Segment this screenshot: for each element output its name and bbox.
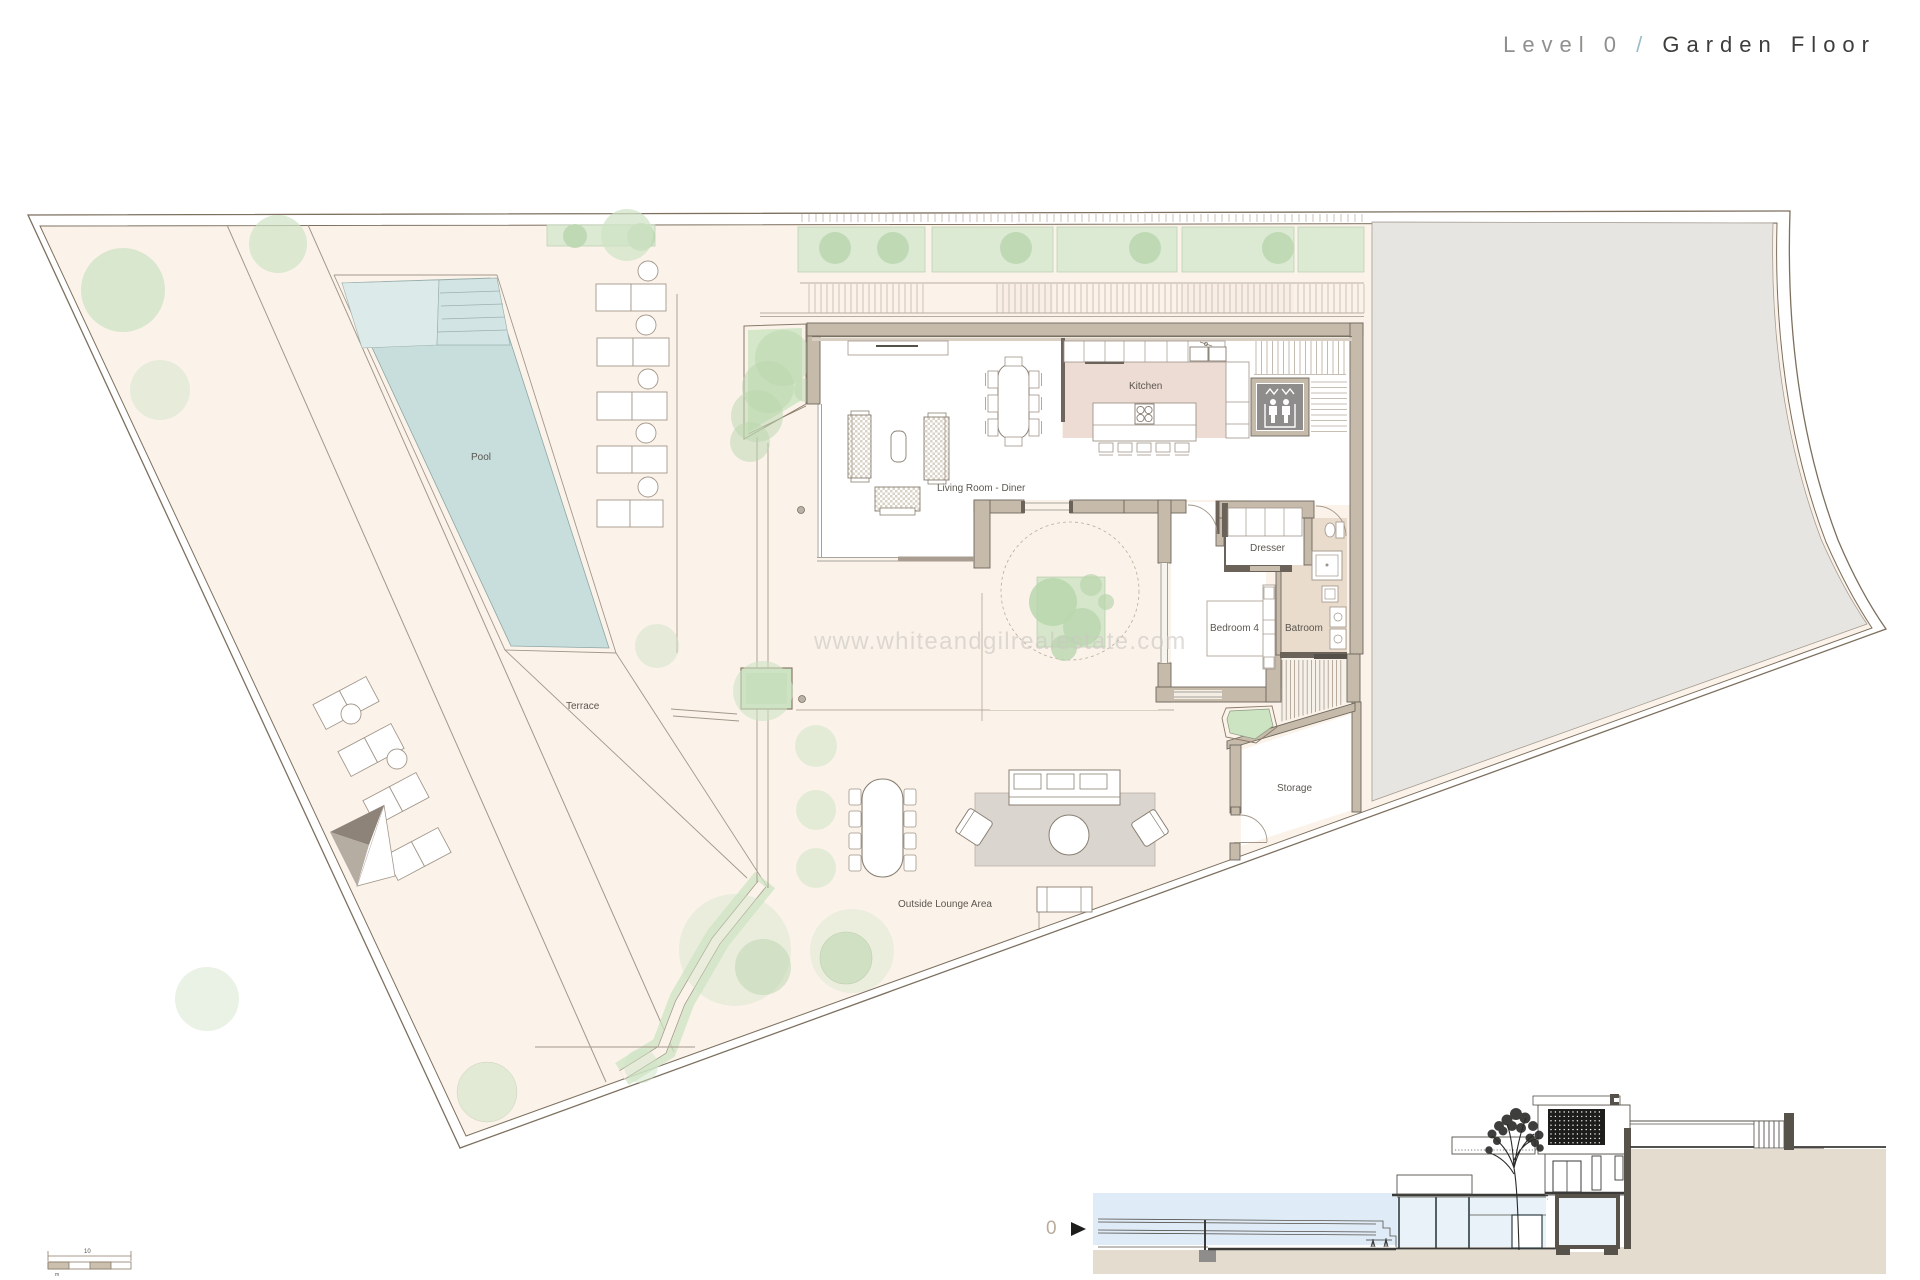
svg-text:Outside Lounge Area: Outside Lounge Area <box>898 899 992 910</box>
svg-text:Batroom: Batroom <box>1285 623 1323 634</box>
svg-text:Dresser: Dresser <box>1250 543 1286 554</box>
svg-text:m: m <box>55 1272 59 1278</box>
svg-text:Pool: Pool <box>471 452 491 463</box>
svg-text:Terrace: Terrace <box>566 701 600 712</box>
svg-text:Living Room - Diner: Living Room - Diner <box>937 483 1026 494</box>
svg-text:Kitchen: Kitchen <box>1129 381 1162 392</box>
svg-text:Storage: Storage <box>1277 783 1312 794</box>
svg-text:10: 10 <box>84 1249 91 1255</box>
svg-text:0: 0 <box>1046 1218 1057 1239</box>
svg-text:Bedroom 4: Bedroom 4 <box>1210 623 1259 634</box>
